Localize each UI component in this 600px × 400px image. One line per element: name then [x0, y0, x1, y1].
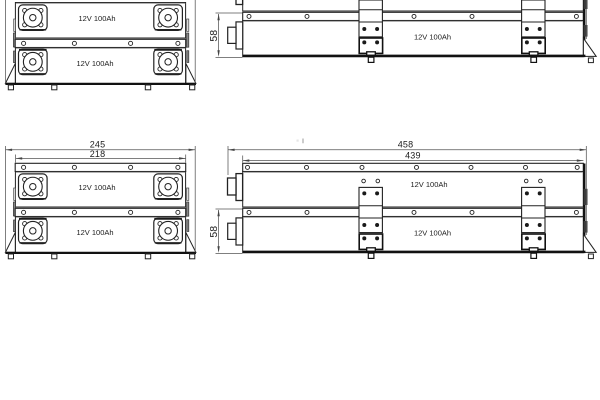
- svg-text:12V 100Ah: 12V 100Ah: [414, 33, 451, 42]
- svg-text:218: 218: [90, 149, 106, 159]
- svg-text:12V 100Ah: 12V 100Ah: [76, 228, 113, 237]
- svg-text:58: 58: [208, 226, 220, 238]
- svg-text:12V 100Ah: 12V 100Ah: [78, 183, 115, 192]
- svg-text:58: 58: [208, 30, 220, 42]
- svg-text:12V 100Ah: 12V 100Ah: [78, 14, 115, 23]
- svg-text:458: 458: [398, 140, 414, 150]
- svg-text:12V 100Ah: 12V 100Ah: [414, 229, 451, 238]
- svg-text:12V 100Ah: 12V 100Ah: [410, 180, 447, 189]
- svg-text:12V 100Ah: 12V 100Ah: [76, 59, 113, 68]
- svg-text:439: 439: [405, 150, 421, 160]
